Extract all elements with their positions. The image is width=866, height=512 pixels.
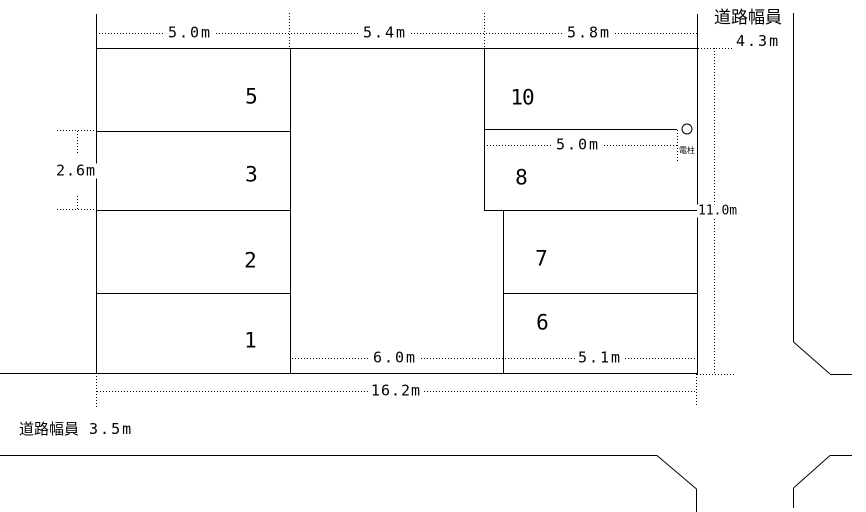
site-boundary-lines (0, 14, 698, 374)
space-label-10: 10 (510, 88, 533, 109)
road-right-width-value: 4.3m (736, 34, 780, 49)
dim-label-total-width: 16.2m (368, 384, 424, 399)
dim-label-top-width-2: 5.4m (360, 26, 410, 41)
road-bottom-width-value: 3.5m (89, 422, 133, 437)
utility-pole-marker (682, 124, 692, 134)
road-right-width-label: 道路幅員 (714, 10, 782, 27)
space-label-1: 1 (244, 331, 256, 352)
space-label-2: 2 (244, 251, 256, 272)
dim-label-pole-offset: 5.0m (553, 138, 603, 153)
dim-label-top-width-1: 5.0m (165, 26, 215, 41)
road-bottom-width-label: 道路幅員 (19, 422, 79, 437)
intersection-chamfer-ne (794, 342, 831, 374)
utility-pole-label: 電柱 (679, 147, 695, 155)
left-parking-block-lines (96, 48, 291, 373)
space-label-5: 5 (245, 87, 257, 108)
intersection-chamfer-sw (657, 456, 697, 490)
road-bottom-width-annotation: 道路幅員 3.5m (19, 422, 133, 437)
dim-label-driveway-width: 6.0m (370, 351, 420, 366)
parking-layout-diagram: 5 3 2 1 10 8 7 6 5.0m 5.4m 5.8m 2.6m 5.0… (0, 0, 866, 512)
space-label-3: 3 (245, 165, 257, 186)
space-label-7: 7 (535, 249, 547, 270)
dim-label-left-depth: 2.6m (53, 164, 99, 179)
space-label-6: 6 (536, 313, 548, 334)
dim-label-site-depth: 11.0m (697, 205, 738, 218)
dim-label-top-width-3: 5.8m (564, 26, 614, 41)
intersection-chamfer-se (794, 456, 831, 489)
road-bottom-label-gap (79, 422, 89, 437)
space-label-8: 8 (515, 168, 527, 189)
dim-label-lower-block-width: 5.1m (575, 351, 625, 366)
